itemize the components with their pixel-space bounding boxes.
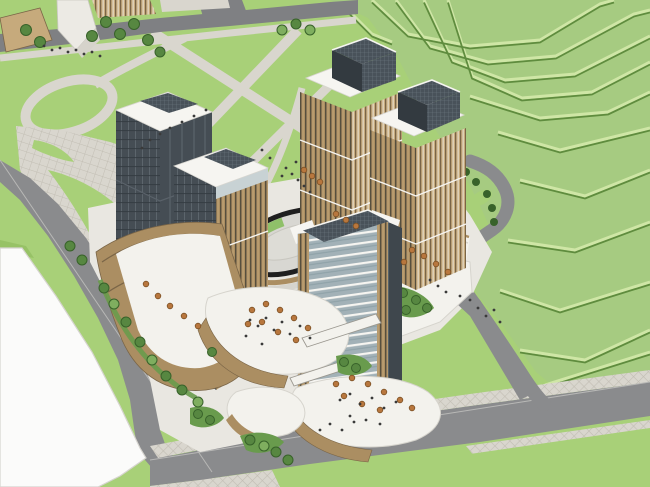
architectural-rendering: [0, 0, 650, 487]
rendering-canvas: [0, 0, 650, 487]
